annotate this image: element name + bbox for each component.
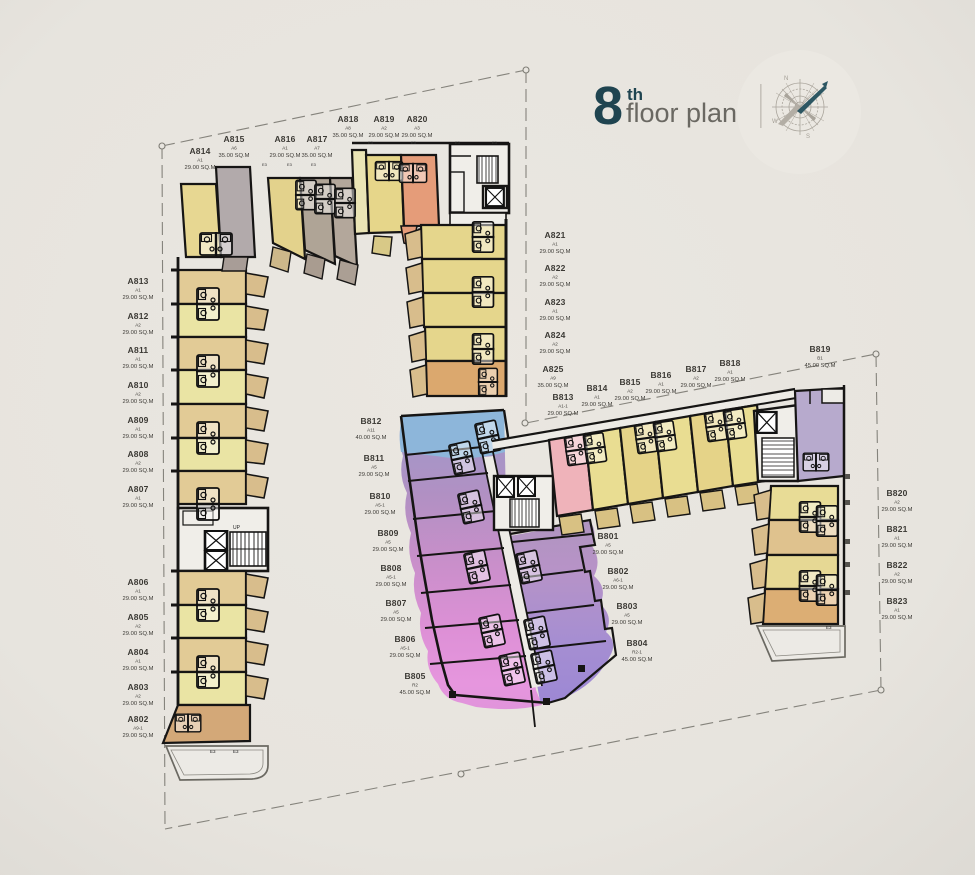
svg-text:29.00 SQ.M: 29.00 SQ.M	[882, 543, 913, 549]
svg-text:A9: A9	[550, 376, 556, 381]
svg-text:A1: A1	[894, 536, 900, 541]
svg-text:A9-1: A9-1	[133, 726, 143, 731]
svg-text:A2: A2	[135, 461, 141, 466]
svg-text:S: S	[806, 134, 810, 140]
svg-text:A1: A1	[658, 382, 664, 387]
svg-text:29.00 SQ.M: 29.00 SQ.M	[123, 503, 154, 509]
svg-text:A1: A1	[135, 659, 141, 664]
svg-text:B815: B815	[619, 377, 640, 387]
svg-text:A2: A2	[135, 323, 141, 328]
svg-text:29.00 SQ.M: 29.00 SQ.M	[365, 510, 396, 516]
svg-text:A825: A825	[542, 364, 563, 374]
svg-text:A812: A812	[127, 311, 148, 321]
svg-text:B806: B806	[394, 634, 415, 644]
svg-text:A1: A1	[552, 309, 558, 314]
svg-text:A819: A819	[373, 114, 394, 124]
svg-text:29.00 SQ.M: 29.00 SQ.M	[603, 585, 634, 591]
svg-text:A815: A815	[223, 134, 244, 144]
svg-text:B818: B818	[719, 358, 740, 368]
svg-text:A821: A821	[544, 230, 565, 240]
svg-text:A2: A2	[135, 694, 141, 699]
svg-text:29.00 SQ.M: 29.00 SQ.M	[376, 582, 407, 588]
svg-text:A811: A811	[128, 345, 149, 355]
svg-text:29.00 SQ.M: 29.00 SQ.M	[540, 349, 571, 355]
svg-text:29.00 SQ.M: 29.00 SQ.M	[646, 389, 677, 395]
svg-text:A817: A817	[306, 134, 327, 144]
svg-text:29.00 SQ.M: 29.00 SQ.M	[882, 579, 913, 585]
svg-text:29.00 SQ.M: 29.00 SQ.M	[540, 249, 571, 255]
svg-text:A2: A2	[135, 624, 141, 629]
svg-text:A1: A1	[135, 589, 141, 594]
svg-text:35.00 SQ.M: 35.00 SQ.M	[219, 153, 250, 159]
svg-text:A809: A809	[127, 415, 148, 425]
svg-text:E3: E3	[368, 140, 374, 145]
svg-text:A820: A820	[406, 114, 427, 124]
svg-text:29.00 SQ.M: 29.00 SQ.M	[123, 701, 154, 707]
svg-text:B802: B802	[607, 566, 628, 576]
svg-text:B817: B817	[685, 364, 706, 374]
svg-text:29.00 SQ.M: 29.00 SQ.M	[390, 653, 421, 659]
svg-text:A803: A803	[127, 682, 148, 692]
svg-text:29.00 SQ.M: 29.00 SQ.M	[582, 402, 613, 408]
svg-text:B819: B819	[809, 344, 830, 354]
svg-text:E3: E3	[826, 625, 832, 630]
svg-text:B814: B814	[586, 383, 607, 393]
svg-text:29.00 SQ.M: 29.00 SQ.M	[359, 472, 390, 478]
svg-text:A1: A1	[197, 158, 203, 163]
svg-text:A5: A5	[624, 613, 630, 618]
svg-text:B809: B809	[377, 528, 398, 538]
svg-text:A6-1: A6-1	[613, 578, 623, 583]
svg-text:29.00 SQ.M: 29.00 SQ.M	[882, 615, 913, 621]
svg-text:E3: E3	[287, 162, 293, 167]
svg-text:N: N	[784, 76, 788, 82]
svg-text:E3: E3	[210, 749, 216, 754]
svg-text:A5: A5	[393, 610, 399, 615]
svg-text:A822: A822	[544, 263, 565, 273]
svg-text:A1: A1	[594, 395, 600, 400]
svg-text:B820: B820	[886, 488, 907, 498]
svg-text:A5-1: A5-1	[375, 503, 385, 508]
svg-text:A5: A5	[385, 540, 391, 545]
svg-text:29.00 SQ.M: 29.00 SQ.M	[540, 282, 571, 288]
svg-text:A818: A818	[337, 114, 358, 124]
svg-text:A805: A805	[127, 612, 148, 622]
svg-text:B810: B810	[369, 491, 390, 501]
svg-text:A1: A1	[135, 288, 141, 293]
svg-text:A2: A2	[693, 376, 699, 381]
svg-text:R2: R2	[412, 683, 418, 688]
svg-text:35.00 SQ.M: 35.00 SQ.M	[302, 153, 333, 159]
svg-text:29.00 SQ.M: 29.00 SQ.M	[123, 468, 154, 474]
svg-text:A1-1: A1-1	[558, 404, 568, 409]
svg-text:29.00 SQ.M: 29.00 SQ.M	[123, 631, 154, 637]
svg-text:29.00 SQ.M: 29.00 SQ.M	[373, 547, 404, 553]
svg-text:B807: B807	[385, 598, 406, 608]
svg-text:B823: B823	[886, 596, 907, 606]
svg-text:29.00 SQ.M: 29.00 SQ.M	[123, 330, 154, 336]
svg-text:A1: A1	[727, 370, 733, 375]
svg-text:A806: A806	[127, 577, 148, 587]
svg-text:B822: B822	[886, 560, 907, 570]
svg-text:A1: A1	[135, 427, 141, 432]
svg-text:A802: A802	[127, 714, 148, 724]
svg-text:29.00 SQ.M: 29.00 SQ.M	[615, 396, 646, 402]
svg-text:A2: A2	[552, 275, 558, 280]
svg-text:29.00 SQ.M: 29.00 SQ.M	[123, 434, 154, 440]
svg-text:35.00 SQ.M: 35.00 SQ.M	[538, 383, 569, 389]
svg-text:29.00 SQ.M: 29.00 SQ.M	[123, 733, 154, 739]
svg-text:B821: B821	[886, 524, 907, 534]
svg-text:29.00 SQ.M: 29.00 SQ.M	[593, 550, 624, 556]
svg-text:29.00 SQ.M: 29.00 SQ.M	[612, 620, 643, 626]
svg-text:A810: A810	[127, 380, 148, 390]
svg-text:R2-1: R2-1	[632, 650, 642, 655]
svg-text:A2: A2	[552, 342, 558, 347]
svg-text:A1: A1	[135, 357, 141, 362]
svg-text:A5: A5	[605, 543, 611, 548]
svg-text:UP: UP	[233, 525, 241, 531]
svg-text:A7: A7	[314, 146, 320, 151]
svg-text:A1: A1	[282, 146, 288, 151]
svg-text:A824: A824	[544, 330, 565, 340]
svg-text:B808: B808	[380, 563, 401, 573]
svg-text:A823: A823	[544, 297, 565, 307]
svg-text:B811: B811	[364, 453, 385, 463]
svg-text:29.00 SQ.M: 29.00 SQ.M	[123, 596, 154, 602]
svg-text:A6: A6	[231, 146, 237, 151]
svg-text:B1: B1	[817, 356, 823, 361]
svg-text:E3: E3	[311, 162, 317, 167]
svg-text:E3: E3	[233, 749, 239, 754]
svg-text:A1: A1	[552, 242, 558, 247]
svg-text:B804: B804	[626, 638, 647, 648]
svg-text:8: 8	[593, 76, 623, 136]
svg-text:A813: A813	[127, 276, 148, 286]
svg-text:A808: A808	[127, 449, 148, 459]
svg-text:29.00 SQ.M: 29.00 SQ.M	[123, 399, 154, 405]
svg-text:A5: A5	[371, 465, 377, 470]
svg-text:45.00 SQ.M: 45.00 SQ.M	[622, 657, 653, 663]
svg-text:B816: B816	[650, 370, 671, 380]
svg-text:A5-1: A5-1	[400, 646, 410, 651]
svg-text:A3: A3	[414, 126, 420, 131]
svg-text:A5-1: A5-1	[386, 575, 396, 580]
svg-text:29.00 SQ.M: 29.00 SQ.M	[270, 153, 301, 159]
svg-text:E3: E3	[262, 162, 268, 167]
svg-text:35.00 SQ.M: 35.00 SQ.M	[333, 133, 364, 139]
svg-text:E3: E3	[411, 140, 417, 145]
svg-text:A816: A816	[274, 134, 295, 144]
svg-text:A2: A2	[894, 572, 900, 577]
svg-text:A804: A804	[127, 647, 148, 657]
svg-text:29.00 SQ.M: 29.00 SQ.M	[369, 133, 400, 139]
svg-text:A1: A1	[894, 608, 900, 613]
svg-text:B812: B812	[360, 416, 381, 426]
svg-text:40.00 SQ.M: 40.00 SQ.M	[356, 435, 387, 441]
svg-text:29.00 SQ.M: 29.00 SQ.M	[381, 617, 412, 623]
svg-text:E3: E3	[492, 140, 498, 145]
svg-text:B801: B801	[597, 531, 618, 541]
svg-text:29.00 SQ.M: 29.00 SQ.M	[715, 377, 746, 383]
svg-text:29.00 SQ.M: 29.00 SQ.M	[681, 383, 712, 389]
svg-text:W: W	[772, 119, 778, 125]
svg-text:B813: B813	[552, 392, 573, 402]
svg-text:29.00 SQ.M: 29.00 SQ.M	[123, 666, 154, 672]
svg-text:A807: A807	[127, 484, 148, 494]
svg-text:29.00 SQ.M: 29.00 SQ.M	[882, 507, 913, 513]
svg-text:29.00 SQ.M: 29.00 SQ.M	[540, 316, 571, 322]
svg-text:29.00 SQ.M: 29.00 SQ.M	[185, 165, 216, 171]
svg-text:29.00 SQ.M: 29.00 SQ.M	[402, 133, 433, 139]
svg-text:A11: A11	[367, 428, 375, 433]
svg-text:A8: A8	[345, 126, 351, 131]
svg-text:29.00 SQ.M: 29.00 SQ.M	[548, 411, 579, 417]
svg-text:45.00 SQ.M: 45.00 SQ.M	[400, 690, 431, 696]
svg-text:29.00 SQ.M: 29.00 SQ.M	[123, 295, 154, 301]
svg-text:A814: A814	[189, 146, 210, 156]
svg-text:29.00 SQ.M: 29.00 SQ.M	[123, 364, 154, 370]
svg-text:A2: A2	[894, 500, 900, 505]
svg-text:floor plan: floor plan	[626, 98, 737, 128]
svg-text:45.00 SQ.M: 45.00 SQ.M	[805, 363, 836, 369]
svg-text:A2: A2	[135, 392, 141, 397]
svg-text:A2: A2	[381, 126, 387, 131]
svg-text:E3: E3	[455, 140, 461, 145]
svg-text:B803: B803	[616, 601, 637, 611]
svg-text:B805: B805	[404, 671, 425, 681]
svg-text:A2: A2	[627, 389, 633, 394]
svg-text:A1: A1	[135, 496, 141, 501]
